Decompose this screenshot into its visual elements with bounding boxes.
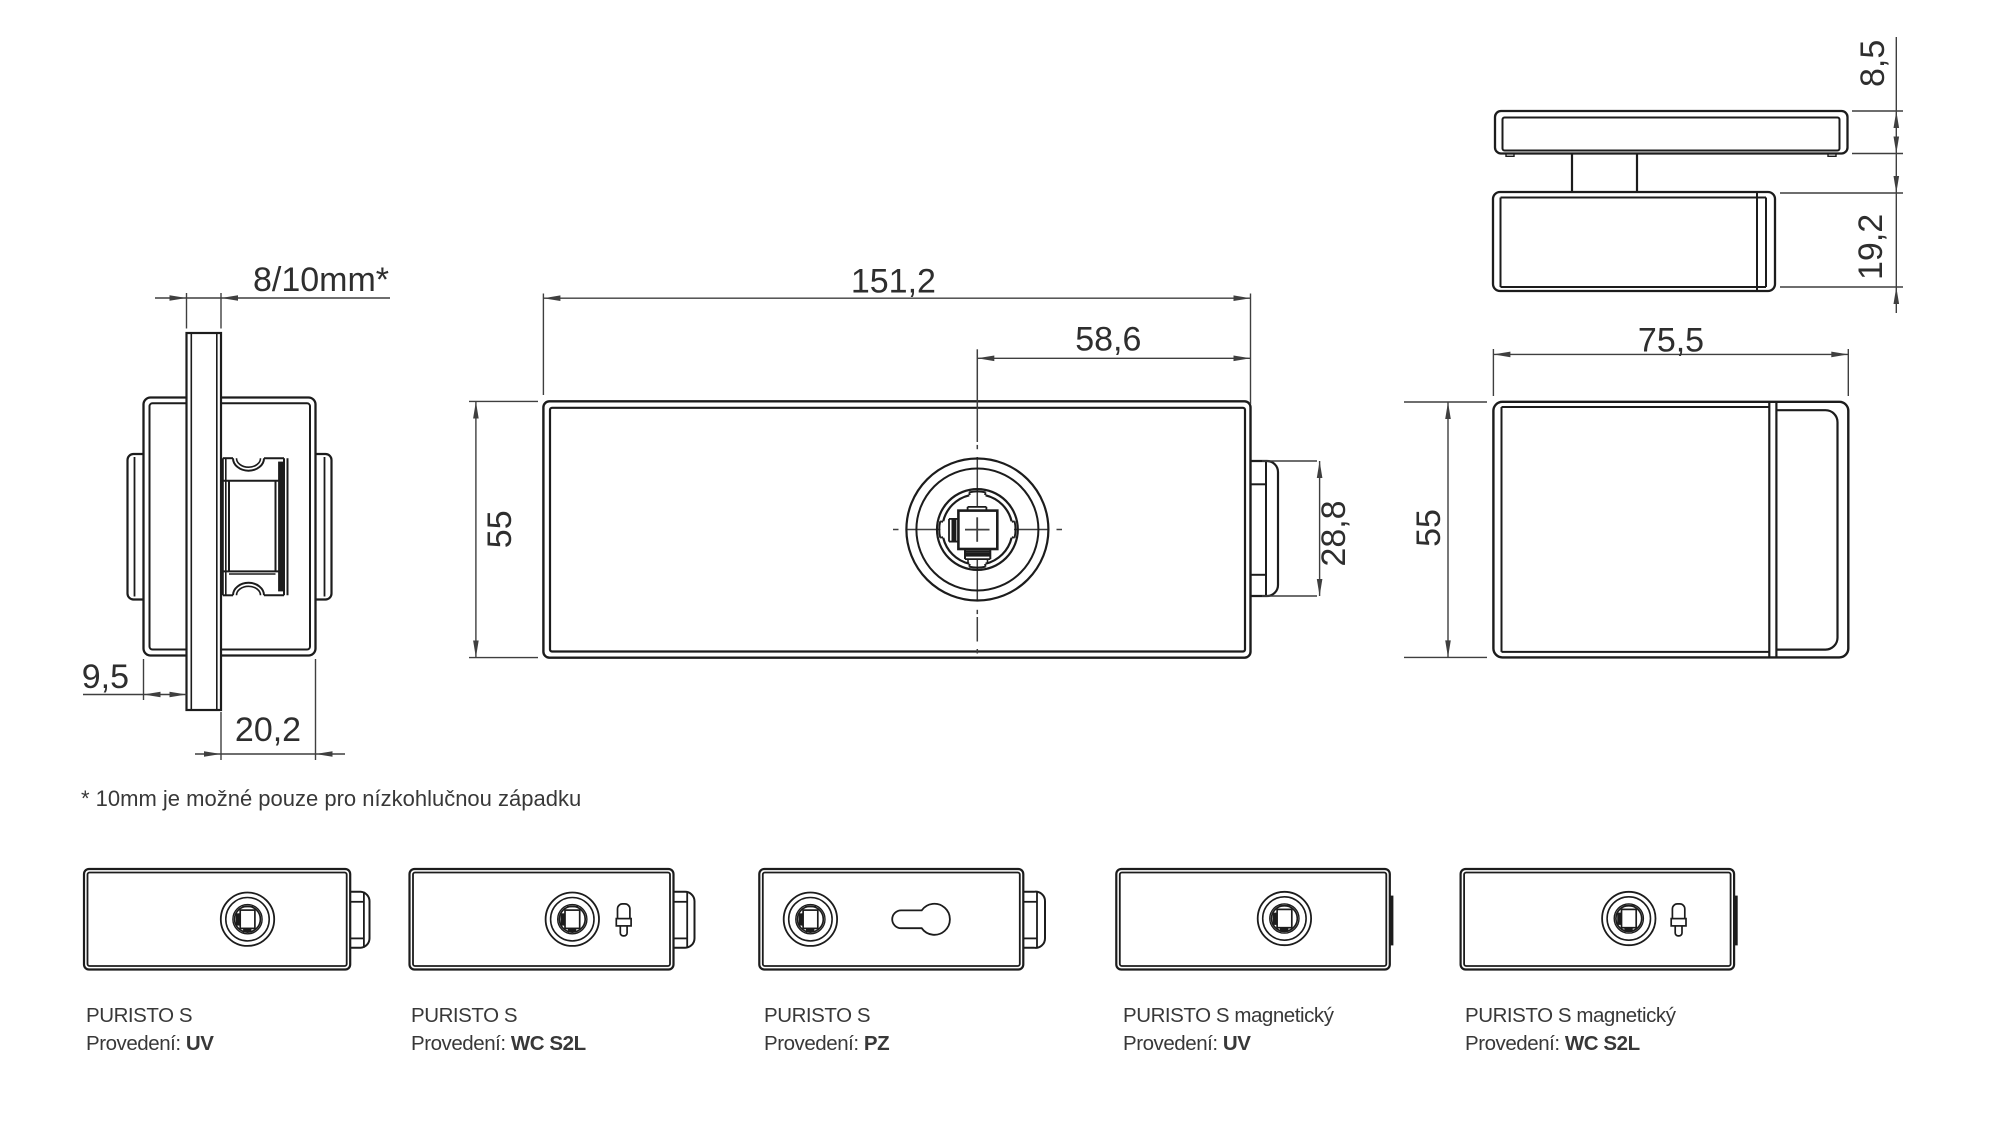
svg-text:28,8: 28,8: [1315, 500, 1353, 566]
svg-text:Provedení: WC S2L: Provedení: WC S2L: [1465, 1032, 1640, 1055]
svg-text:151,2: 151,2: [851, 262, 936, 300]
svg-text:Provedení: WC S2L: Provedení: WC S2L: [411, 1032, 586, 1055]
svg-text:Provedení: PZ: Provedení: PZ: [764, 1032, 889, 1055]
svg-text:PURISTO S magnetický: PURISTO S magnetický: [1123, 1004, 1335, 1027]
svg-text:8,5: 8,5: [1854, 40, 1892, 87]
svg-text:55: 55: [481, 510, 519, 548]
svg-text:8/10mm*: 8/10mm*: [253, 261, 389, 299]
svg-text:PURISTO S: PURISTO S: [411, 1004, 517, 1027]
svg-text:Provedení: UV: Provedení: UV: [86, 1032, 214, 1055]
svg-text:20,2: 20,2: [235, 711, 301, 749]
svg-text:Provedení: UV: Provedení: UV: [1123, 1032, 1251, 1055]
svg-text:58,6: 58,6: [1075, 320, 1141, 358]
svg-text:19,2: 19,2: [1852, 214, 1890, 280]
svg-text:75,5: 75,5: [1638, 322, 1704, 360]
svg-text:PURISTO S: PURISTO S: [764, 1004, 870, 1027]
svg-text:9,5: 9,5: [82, 658, 129, 696]
svg-text:* 10mm je možné pouze pro nízk: * 10mm je možné pouze pro nízkohlučnou z…: [81, 786, 581, 811]
svg-text:PURISTO S magnetický: PURISTO S magnetický: [1465, 1004, 1677, 1027]
svg-text:55: 55: [1410, 509, 1448, 547]
svg-text:PURISTO S: PURISTO S: [86, 1004, 192, 1027]
